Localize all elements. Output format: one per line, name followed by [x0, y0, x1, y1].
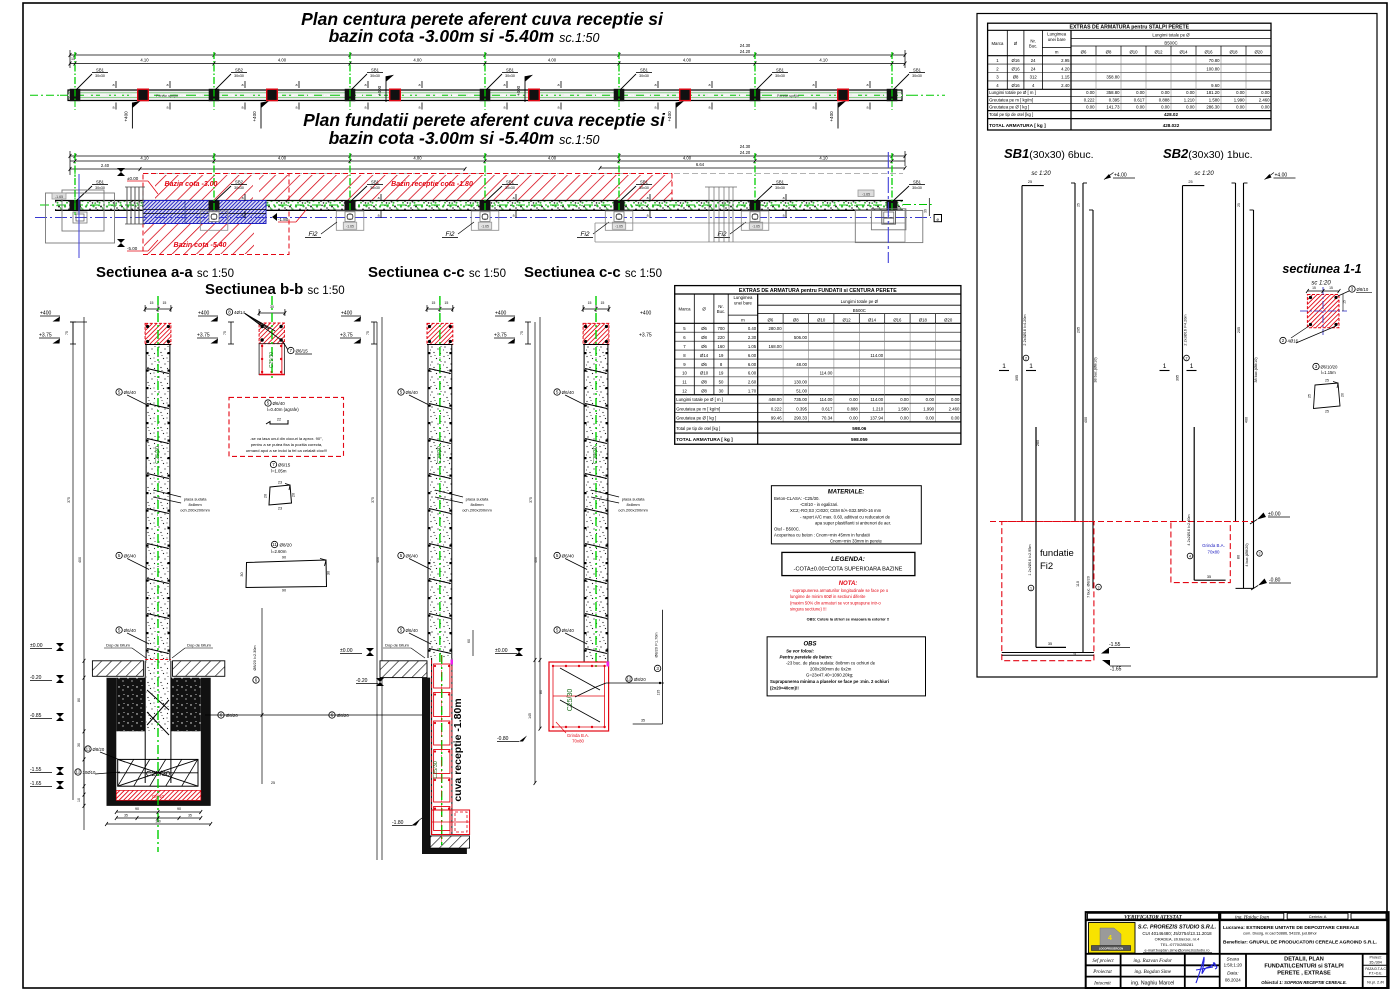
svg-text:168.00: 168.00: [768, 344, 782, 349]
svg-text:11: 11: [86, 747, 91, 752]
svg-text:70.34: 70.34: [822, 416, 833, 421]
svg-text:Nr.pl. 2./R: Nr.pl. 2./R: [1367, 981, 1384, 985]
svg-text:15: 15: [588, 301, 592, 305]
svg-text:0.00: 0.00: [900, 416, 909, 421]
svg-text:m: m: [1055, 50, 1059, 55]
svg-text:+400: +400: [123, 111, 128, 122]
svg-text:Ø6/40: Ø6/40: [124, 390, 137, 395]
svg-text:Ø16: Ø16: [1012, 83, 1021, 88]
svg-text:90: 90: [282, 556, 286, 560]
svg-text:Ø16: Ø16: [1012, 58, 1021, 63]
svg-text:-COTA±0.00=COTA SUPERIOARA BAZ: -COTA±0.00=COTA SUPERIOARA BAZINE: [794, 567, 903, 573]
svg-text:Beton-CLASA: -C25/30.: Beton-CLASA: -C25/30.: [774, 496, 820, 501]
svg-text:10: 10: [77, 798, 81, 802]
svg-text:l=1.15m: l=1.15m: [1321, 370, 1336, 375]
svg-text:25: 25: [1325, 410, 1329, 414]
svg-text:ing. Naghiu Marcel: ing. Naghiu Marcel: [1131, 981, 1174, 987]
svg-text:Ø8: Ø8: [793, 317, 799, 322]
svg-text:1.70: 1.70: [748, 389, 757, 394]
svg-text:0.222: 0.222: [771, 406, 782, 411]
svg-text:0.617: 0.617: [1134, 97, 1145, 102]
svg-text:Bazin receptie cota -1.80: Bazin receptie cota -1.80: [391, 181, 473, 188]
svg-text:Ø8/20: Ø8/20: [634, 677, 646, 682]
svg-text:Ø10: Ø10: [1129, 50, 1138, 55]
svg-text:75: 75: [65, 331, 69, 335]
svg-text:181.20: 181.20: [1206, 90, 1220, 95]
svg-text:Fi2: Fi2: [1040, 561, 1053, 572]
svg-text:1.210: 1.210: [872, 406, 883, 411]
svg-text:-1.65: -1.65: [481, 225, 489, 229]
svg-text:1: 1: [1163, 363, 1167, 370]
svg-text:-1.65: -1.65: [862, 192, 870, 196]
svg-text:Ø6: Ø6: [701, 344, 707, 349]
svg-text:Ø16: Ø16: [1204, 50, 1213, 55]
svg-text:35: 35: [1207, 575, 1211, 579]
svg-text:80: 80: [539, 690, 543, 694]
svg-text:3: 3: [1259, 552, 1261, 556]
svg-text:24: 24: [1031, 58, 1036, 63]
svg-text:SB2: SB2: [235, 180, 244, 185]
svg-text:141.73: 141.73: [1106, 104, 1120, 109]
svg-text:Ø16: Ø16: [893, 317, 902, 322]
svg-text:Greutatea pe Ø [ kg ]: Greutatea pe Ø [ kg ]: [989, 104, 1029, 109]
svg-text:114.00: 114.00: [870, 353, 883, 358]
svg-text:1.580: 1.580: [898, 406, 909, 411]
svg-text:l=0.40m (agrafe): l=0.40m (agrafe): [267, 407, 299, 412]
svg-text:12: 12: [626, 677, 632, 682]
svg-text:137.94: 137.94: [870, 416, 884, 421]
svg-text:EXTRAS DE ARMATURA pentru FUND: EXTRAS DE ARMATURA pentru FUNDATII si CE…: [739, 288, 897, 294]
svg-text:-1.65: -1.65: [55, 195, 63, 199]
svg-text:30: 30: [719, 389, 724, 394]
svg-text:130.00: 130.00: [794, 380, 808, 385]
svg-text:19: 19: [719, 371, 724, 376]
svg-text:160: 160: [717, 344, 725, 349]
svg-text:+400: +400: [640, 311, 651, 317]
svg-text:1: 1: [1030, 586, 1032, 590]
svg-text:Bazin cota -5.40: Bazin cota -5.40: [174, 242, 227, 249]
svg-text:0.00: 0.00: [1086, 90, 1095, 95]
svg-text:Ø6: Ø6: [1081, 50, 1087, 55]
svg-text:Lungimi totale pe Ø: Lungimi totale pe Ø: [1152, 33, 1190, 38]
svg-text:C25/30: C25/30: [155, 446, 161, 464]
svg-text:4.00: 4.00: [548, 156, 557, 161]
svg-text:70.80: 70.80: [1209, 58, 1220, 63]
svg-text:0.00: 0.00: [1261, 104, 1270, 109]
svg-text:Greutatea pe m [ kg/m]: Greutatea pe m [ kg/m]: [676, 406, 720, 411]
svg-text:1.990: 1.990: [923, 406, 934, 411]
svg-text:-1.80: -1.80: [392, 820, 404, 826]
svg-text:312: 312: [1030, 75, 1038, 80]
svg-text:35./304: 35./304: [1369, 961, 1382, 965]
svg-text:Beneficiar: GRUPUL DE PRODUCAT: Beneficiar: GRUPUL DE PRODUCATORI CEREAL…: [1223, 940, 1377, 946]
svg-text:4 2x2Ø16 l=2.40m: 4 2x2Ø16 l=2.40m: [1187, 514, 1191, 545]
svg-text:395: 395: [1176, 375, 1180, 381]
svg-text:100.80: 100.80: [1206, 66, 1220, 71]
svg-text:20: 20: [1341, 393, 1345, 397]
svg-text:-0.20: -0.20: [356, 678, 368, 684]
svg-text:15: 15: [431, 301, 435, 305]
svg-text:48.00: 48.00: [796, 362, 807, 367]
svg-text:12: 12: [682, 389, 687, 394]
svg-text:0.888: 0.888: [847, 406, 858, 411]
svg-text:0.00: 0.00: [1136, 90, 1145, 95]
svg-text:75: 75: [223, 331, 227, 335]
svg-text:4: 4: [1189, 554, 1191, 558]
svg-text:+400: +400: [252, 111, 257, 122]
svg-text:och.200x200mm: och.200x200mm: [618, 508, 648, 513]
svg-text:1.05: 1.05: [748, 344, 757, 349]
svg-text:Ø8: Ø8: [1013, 75, 1019, 80]
svg-text:Buc.: Buc.: [1029, 44, 1038, 49]
svg-text:0.00: 0.00: [1136, 104, 1145, 109]
svg-text:XC2;-RO;S3 ;CI020; CEM II/A-S3: XC2;-RO;S3 ;CI020; CEM II/A-S32.5R/0-16 …: [790, 508, 882, 513]
svg-text:sc 1:20: sc 1:20: [1031, 171, 1051, 177]
svg-text:25: 25: [1325, 379, 1329, 383]
svg-text:-1.80: -1.80: [278, 217, 289, 222]
svg-text:-23 buc. de plasa sudata: 8x8m: -23 buc. de plasa sudata: 8x8mm cu ochiu…: [786, 661, 876, 666]
svg-text:8x8mm: 8x8mm: [627, 502, 641, 507]
svg-text:Buc.: Buc.: [717, 309, 726, 314]
svg-text:SB1: SB1: [371, 180, 380, 185]
svg-text:FAZA:D.T.A.C: FAZA:D.T.A.C: [1365, 967, 1386, 971]
svg-text:Ø12: Ø12: [1154, 50, 1163, 55]
svg-text:24.20: 24.20: [740, 49, 751, 54]
svg-text:6.00: 6.00: [748, 362, 757, 367]
svg-text:a: a: [365, 83, 367, 87]
svg-text:com. Diosig, nr.cad 53886, 543: com. Diosig, nr.cad 53886, 54328, jud.Bi…: [1243, 932, 1317, 936]
svg-text:99.46: 99.46: [771, 416, 782, 421]
svg-text:Lungimea: Lungimea: [1047, 31, 1066, 36]
svg-text:2 2x3Ø16 l=4.20m: 2 2x3Ø16 l=4.20m: [1023, 314, 1027, 345]
svg-text:S.C. PROREZIS STUDIO S.R.L.: S.C. PROREZIS STUDIO S.R.L.: [1138, 925, 1217, 931]
svg-text:30x30: 30x30: [370, 74, 380, 78]
svg-text:Lucrarea: EXTINDERE UNITATE DE: Lucrarea: EXTINDERE UNITATE DE DEPOZITAR…: [1223, 925, 1360, 931]
svg-text:25: 25: [1308, 394, 1312, 398]
svg-text:30x30: 30x30: [370, 186, 380, 190]
svg-text:B500C: B500C: [853, 308, 866, 313]
svg-text:a: a: [783, 214, 785, 218]
svg-text:12: 12: [75, 770, 81, 775]
svg-text:80: 80: [77, 698, 81, 702]
svg-text:Ø8/20: Ø8/20: [93, 747, 105, 752]
svg-text:2: 2: [1025, 356, 1027, 360]
svg-text:Ø18: Ø18: [919, 317, 928, 322]
svg-text:23: 23: [278, 507, 282, 511]
svg-text:PERETE , EXTRASE: PERETE , EXTRASE: [1277, 971, 1331, 977]
svg-text:a: a: [513, 214, 515, 218]
svg-text:205: 205: [1237, 327, 1241, 333]
svg-text:35: 35: [188, 814, 192, 818]
svg-text:TEL.:0770/285281: TEL.:0770/285281: [1161, 942, 1195, 947]
svg-text:Se vor folosi:: Se vor folosi:: [786, 649, 814, 654]
svg-text:Fi2: Fi2: [445, 231, 454, 238]
svg-text:2.30: 2.30: [748, 335, 757, 340]
svg-text:9.60: 9.60: [1211, 83, 1220, 88]
svg-text:Perete sprijin: Perete sprijin: [156, 94, 178, 98]
svg-text:Ø6/40: Ø6/40: [124, 553, 137, 558]
svg-text:a: a: [655, 83, 657, 87]
svg-text:4 buc.(Ø8/20): 4 buc.(Ø8/20): [1245, 543, 1249, 567]
svg-text:Ø6: Ø6: [701, 326, 707, 331]
svg-text:ing. Bogdan Sime: ing. Bogdan Sime: [1134, 969, 1171, 975]
svg-text:-1.55: -1.55: [30, 767, 42, 773]
svg-text:-1.65: -1.65: [346, 225, 354, 229]
svg-text:2.60: 2.60: [748, 380, 757, 385]
svg-text:Lungimi totale pe Ø [ m ]: Lungimi totale pe Ø [ m ]: [676, 397, 723, 402]
svg-text:plasa sudata: plasa sudata: [622, 497, 645, 502]
svg-text:4.00: 4.00: [683, 58, 692, 63]
svg-text:4.00: 4.00: [548, 58, 557, 63]
svg-text:Lungimi totale pe Ø [ m ]: Lungimi totale pe Ø [ m ]: [989, 90, 1036, 95]
svg-text:4.00: 4.00: [278, 156, 287, 161]
svg-text:50: 50: [719, 380, 724, 385]
svg-text:145: 145: [528, 713, 532, 719]
svg-text:15: 15: [1343, 300, 1347, 304]
svg-text:a: a: [655, 106, 657, 110]
svg-text:2.40: 2.40: [1061, 83, 1070, 88]
svg-text:70x80: 70x80: [1208, 550, 1221, 555]
svg-text:apa super plastifianti si antr: apa super plastifianti si antrenori de a…: [815, 520, 891, 525]
svg-text:Ø18: Ø18: [1229, 50, 1238, 55]
svg-text:Cnom=min 33mm in perete: Cnom=min 33mm in perete: [830, 539, 883, 544]
svg-text:30x30: 30x30: [505, 186, 515, 190]
svg-text:6.00: 6.00: [748, 371, 757, 376]
svg-text:bazin cota -3.00m si -5.40m sc: bazin cota -3.00m si -5.40m sc.1:50: [329, 128, 600, 148]
svg-text:NOTA:: NOTA:: [839, 581, 858, 587]
svg-text:19: 19: [719, 353, 724, 358]
svg-text:90: 90: [177, 807, 181, 811]
svg-text:Ø6/15: Ø6/15: [296, 349, 309, 354]
svg-text:0.00: 0.00: [1261, 90, 1270, 95]
svg-text:a: a: [647, 196, 649, 200]
svg-text:80: 80: [1237, 555, 1241, 559]
svg-text:a: a: [378, 196, 380, 200]
svg-text:bazin cota -3.00m si -5.40m sc: bazin cota -3.00m si -5.40m sc.1:50: [329, 26, 600, 46]
svg-text:30x30: 30x30: [505, 74, 515, 78]
svg-text:a: a: [867, 83, 869, 87]
svg-text:4.10: 4.10: [140, 58, 149, 63]
svg-text:Proiectat: Proiectat: [1092, 970, 1112, 975]
svg-text:a: a: [709, 106, 711, 110]
svg-text:Ø20: Ø20: [1254, 50, 1263, 55]
svg-text:Total pe tip de otel [kg ]: Total pe tip de otel [kg ]: [676, 426, 720, 431]
svg-text:0.617: 0.617: [822, 406, 833, 411]
svg-text:375: 375: [529, 497, 533, 503]
svg-text:+400: +400: [667, 111, 672, 122]
svg-text:4.10: 4.10: [819, 156, 828, 161]
svg-text:30x30: 30x30: [95, 186, 105, 190]
svg-text:1.15: 1.15: [1061, 75, 1070, 80]
svg-text:SB1: SB1: [640, 68, 649, 73]
svg-text:Greutatea pe m [ kg/m]: Greutatea pe m [ kg/m]: [989, 97, 1033, 102]
svg-text:ORADEA, str.Berzei, nr.4: ORADEA, str.Berzei, nr.4: [1155, 936, 1200, 941]
svg-text:singura sectiune) !!!: singura sectiune) !!!: [790, 607, 827, 612]
svg-text:-1.65: -1.65: [1110, 667, 1122, 673]
svg-text:SB1: SB1: [371, 68, 380, 73]
svg-text:a: a: [504, 83, 506, 87]
svg-text:200x200mm de 6x2m: 200x200mm de 6x2m: [810, 667, 852, 672]
svg-text:sc 1:20: sc 1:20: [1194, 171, 1214, 177]
svg-text:Lungimea: Lungimea: [734, 295, 753, 300]
svg-text:±0.00: ±0.00: [340, 648, 353, 654]
svg-text:2.95: 2.95: [1061, 58, 1070, 63]
svg-text:och.200x200mm: och.200x200mm: [180, 508, 210, 513]
svg-text:0.00: 0.00: [1236, 90, 1245, 95]
svg-text:Total pe tip de otel [kg ]: Total pe tip de otel [kg ]: [989, 112, 1033, 117]
svg-text:SB1: SB1: [913, 68, 922, 73]
svg-text:22: 22: [277, 418, 281, 422]
svg-text:30x30: 30x30: [775, 186, 785, 190]
svg-text:395: 395: [1015, 375, 1019, 381]
svg-text:114.00: 114.00: [870, 397, 883, 402]
svg-text:EXTRAS DE ARMATURA pentru STAL: EXTRAS DE ARMATURA pentru STALPI PERETE: [1069, 24, 1189, 30]
svg-text:Ø8: Ø8: [1106, 50, 1112, 55]
svg-text:-1.65: -1.65: [752, 225, 760, 229]
svg-text:30: 30: [327, 571, 331, 575]
svg-text:SB1: SB1: [776, 68, 785, 73]
svg-text:+4.00: +4.00: [1114, 173, 1127, 179]
svg-text:±0.00: ±0.00: [127, 176, 139, 181]
svg-text:15: 15: [1329, 286, 1333, 290]
svg-text:735.00: 735.00: [794, 397, 808, 402]
svg-text:Ø8/10: Ø8/10: [1357, 287, 1369, 292]
svg-text:0.222: 0.222: [1084, 97, 1095, 102]
svg-text:30x30: 30x30: [775, 74, 785, 78]
svg-text:375: 375: [67, 497, 71, 503]
svg-text:1: 1: [1002, 363, 1006, 370]
svg-text:598.06: 598.06: [852, 426, 866, 431]
svg-text:plasa sudata: plasa sudata: [184, 497, 207, 502]
svg-text:24.30: 24.30: [740, 144, 751, 149]
svg-text:75: 75: [520, 331, 524, 335]
svg-text:30: 30: [77, 743, 81, 747]
svg-text:0.00: 0.00: [1161, 104, 1170, 109]
svg-text:Acoperirea cu beton : Cnom=min: Acoperirea cu beton : Cnom=min 45mm in f…: [774, 533, 870, 538]
svg-text:6.64: 6.64: [696, 162, 705, 167]
svg-text:Cerinta: A: Cerinta: A: [1309, 914, 1327, 919]
svg-text:598.059: 598.059: [851, 437, 868, 442]
svg-text:Otel - B500C.: Otel - B500C.: [774, 527, 800, 532]
svg-text:25: 25: [1028, 180, 1032, 184]
svg-text:Ø6/40: Ø6/40: [562, 628, 575, 633]
svg-text:25: 25: [1077, 203, 1081, 207]
svg-text:4.00: 4.00: [413, 58, 422, 63]
svg-text:Dop de bitum: Dop de bitum: [385, 643, 409, 648]
svg-text:Grinda B.A.: Grinda B.A.: [1202, 543, 1225, 548]
svg-text:a: a: [242, 106, 244, 110]
svg-text:160: 160: [155, 820, 161, 824]
svg-text:Ø14: Ø14: [700, 353, 709, 358]
svg-text:506.00: 506.00: [794, 335, 808, 340]
svg-text:0.00: 0.00: [900, 397, 909, 402]
svg-text:4: 4: [1108, 935, 1112, 942]
svg-text:ing. Razvan Fodor: ing. Razvan Fodor: [1133, 958, 1173, 964]
svg-text:G=23x47.40=1090.20kg;: G=23x47.40=1090.20kg;: [806, 673, 853, 678]
svg-text:15: 15: [162, 301, 166, 305]
svg-text:Sef proiect: Sef proiect: [1092, 959, 1114, 964]
svg-text:11: 11: [272, 542, 277, 547]
svg-text:TOTAL ARMATURA [ kg ]: TOTAL ARMATURA [ kg ]: [989, 123, 1046, 129]
svg-text:2.460: 2.460: [1259, 97, 1270, 102]
svg-text:pentru a se putea fixa la pozi: pentru a se putea fixa la pozitia corect…: [251, 442, 323, 447]
svg-text:Ø12: Ø12: [843, 317, 852, 322]
svg-text:15: 15: [444, 301, 448, 305]
svg-text:30x30: 30x30: [639, 74, 649, 78]
svg-text:C25/30: C25/30: [269, 352, 275, 368]
svg-text:4.00: 4.00: [413, 156, 422, 161]
svg-text:2 2x3Ø16 l=4.20m: 2 2x3Ø16 l=4.20m: [1184, 314, 1188, 345]
svg-text:280.00: 280.00: [768, 326, 782, 331]
svg-text:286.30: 286.30: [1206, 104, 1220, 109]
svg-text:30x30: 30x30: [912, 74, 922, 78]
svg-text:23: 23: [278, 481, 282, 485]
svg-text:SB1: SB1: [96, 68, 105, 73]
svg-text:SB1: SB1: [640, 180, 649, 185]
svg-text:0.00: 0.00: [849, 397, 858, 402]
svg-text:a: a: [813, 106, 815, 110]
svg-text:Ø6/40: Ø6/40: [406, 390, 419, 395]
svg-text:Ø6/40: Ø6/40: [562, 390, 575, 395]
svg-text:400: 400: [78, 557, 82, 563]
svg-text:a: a: [242, 83, 244, 87]
svg-text:2.460: 2.460: [949, 406, 960, 411]
svg-text:Marca: Marca: [991, 41, 1004, 46]
svg-text:0.00: 0.00: [849, 416, 858, 421]
svg-text:220: 220: [717, 335, 725, 340]
svg-text:a: a: [783, 196, 785, 200]
svg-text:SB1: SB1: [913, 180, 922, 185]
svg-text:Ø6/40: Ø6/40: [406, 553, 419, 558]
svg-text:20: 20: [264, 494, 268, 498]
svg-text:a: a: [513, 196, 515, 200]
svg-text:Obiectul 1: SOPRON RECEPTIE CE: Obiectul 1: SOPRON RECEPTIE CEREALE.: [1261, 980, 1346, 985]
svg-text:Lungimi totale pe Ø: Lungimi totale pe Ø: [841, 299, 879, 304]
svg-text:Ø6: Ø6: [701, 362, 707, 367]
svg-text:a: a: [242, 196, 244, 200]
svg-text:-0.20: -0.20: [30, 675, 42, 681]
svg-text:35: 35: [124, 814, 128, 818]
svg-text:38 buc.(Ø8/10): 38 buc.(Ø8/10): [1094, 357, 1098, 383]
svg-text:114.00: 114.00: [820, 371, 833, 376]
svg-text:-0.80: -0.80: [1269, 578, 1281, 584]
svg-text:±0.00: ±0.00: [495, 648, 508, 654]
svg-text:24.30: 24.30: [740, 43, 751, 48]
svg-text:plasa sudata: plasa sudata: [466, 497, 489, 502]
svg-text:2.40: 2.40: [101, 163, 110, 168]
svg-text:375: 375: [371, 497, 375, 503]
svg-text:428.02: 428.02: [1164, 112, 1178, 117]
svg-text:25: 25: [1237, 203, 1241, 207]
svg-text:sectiunea 1-1: sectiunea 1-1: [1282, 262, 1361, 276]
svg-text:SB1(30x30) 6buc.: SB1(30x30) 6buc.: [1004, 146, 1094, 161]
svg-text:70x80: 70x80: [572, 739, 584, 744]
svg-text:24.20: 24.20: [740, 150, 751, 155]
svg-text:0.00: 0.00: [926, 416, 935, 421]
svg-text:MATERIALE:: MATERIALE:: [828, 490, 865, 496]
svg-text:OBS: OBS: [803, 642, 816, 648]
svg-text:Ø14: Ø14: [1179, 50, 1188, 55]
svg-text:-se va lasa unul din ciocuri l: -se va lasa unul din ciocuri la aprox. 9…: [250, 436, 323, 441]
svg-text:0.888: 0.888: [1159, 97, 1170, 102]
svg-text:0.00: 0.00: [1086, 104, 1095, 109]
svg-text:Plan fundatii perete aferent c: Plan fundatii perete aferent cuva recept…: [303, 110, 666, 130]
svg-text:260: 260: [1036, 440, 1040, 446]
svg-text:l=1.05m: l=1.05m: [271, 469, 287, 474]
svg-text:30x30: 30x30: [234, 74, 244, 78]
svg-text:400: 400: [1245, 417, 1249, 423]
svg-text:10: 10: [682, 371, 687, 376]
